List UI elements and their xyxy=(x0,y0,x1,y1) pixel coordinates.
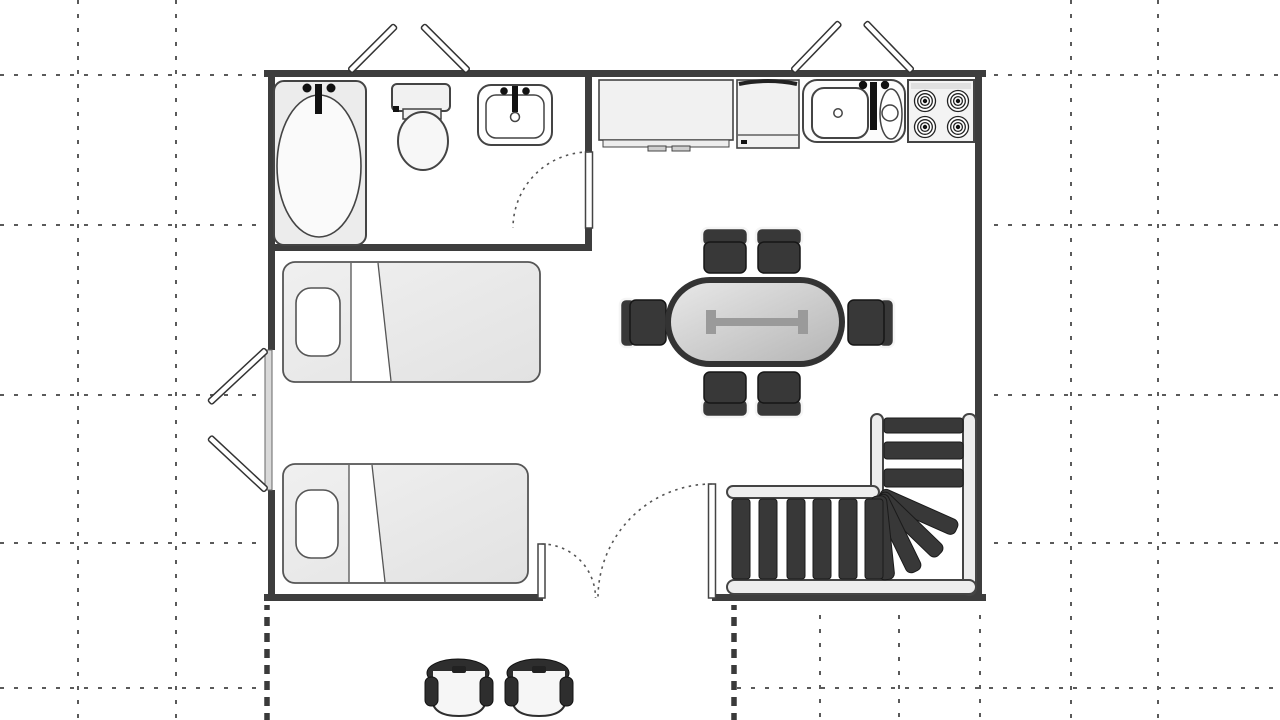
bed-2 xyxy=(283,464,528,583)
bed-1 xyxy=(283,262,540,382)
sink-tap-handle xyxy=(881,81,889,89)
patio-chair xyxy=(425,659,493,716)
stair-tread xyxy=(884,469,963,487)
bathtub-fixture xyxy=(274,81,366,245)
patio-chair xyxy=(505,659,573,716)
pillow xyxy=(296,490,338,558)
stair-tread xyxy=(732,499,750,579)
stair-stringer xyxy=(963,414,976,595)
top-left-door-leaf xyxy=(348,24,397,73)
property-boundary-dashed xyxy=(267,601,734,720)
entrance-door-leaf-small xyxy=(538,544,545,598)
sink-side-drain xyxy=(882,105,898,121)
stair-tread xyxy=(813,499,831,579)
stair-tread xyxy=(884,418,963,433)
chair-seat xyxy=(758,372,800,403)
dining-chair xyxy=(702,228,748,273)
stove-burner-icon xyxy=(948,91,969,112)
dining-chair xyxy=(756,228,802,273)
washbasin-tap-handle xyxy=(522,87,530,95)
stove-burner-icon xyxy=(948,117,969,138)
kitchen-counter xyxy=(599,80,733,151)
stair-tread xyxy=(865,499,883,579)
stair-tread xyxy=(759,499,777,579)
table-ibeam-bar xyxy=(714,318,800,326)
patio-chair-seat xyxy=(432,670,486,716)
stair-stringer xyxy=(727,486,879,498)
sink-tap-handle xyxy=(859,81,867,89)
chair-seat xyxy=(758,242,800,273)
dining-chair xyxy=(848,299,894,347)
chair-seat xyxy=(630,300,666,345)
top-left-door-leaf xyxy=(421,24,470,73)
chair-seat xyxy=(848,300,884,345)
stove-back-panel xyxy=(911,83,971,89)
patio-chair-armrest xyxy=(480,677,493,706)
stove-burner-icon xyxy=(915,91,936,112)
cabinet-body xyxy=(737,80,799,148)
floor-plan-drawing xyxy=(0,0,1280,720)
bathtub-basin xyxy=(277,95,361,237)
counter-handle xyxy=(648,146,666,151)
stair-tread xyxy=(787,499,805,579)
pillow xyxy=(296,288,340,356)
stove-burner-icon xyxy=(915,117,936,138)
patio-chair-headrest xyxy=(452,666,466,673)
kitchen xyxy=(599,80,974,151)
washbasin-drain xyxy=(511,113,520,122)
dining-chair xyxy=(702,372,748,417)
toilet-flush-button xyxy=(393,106,399,112)
washbasin-fixture xyxy=(478,85,552,145)
chair-seat xyxy=(704,372,746,403)
sink-drain xyxy=(834,109,842,117)
left-door-leaf xyxy=(208,348,268,405)
washbasin-tap-handle xyxy=(500,87,508,95)
left-door-threshold xyxy=(265,350,272,490)
top-right-door-leaf xyxy=(863,21,914,73)
cabinet-latch xyxy=(741,140,747,144)
table-ibeam-cap xyxy=(798,310,808,334)
dining-chair xyxy=(756,372,802,417)
bathtub-faucet-icon xyxy=(315,84,322,114)
toilet-tank xyxy=(392,84,450,111)
counter-top xyxy=(599,80,733,140)
stair-stringer xyxy=(871,414,883,496)
stair-stringer xyxy=(727,580,976,594)
sink-faucet-icon xyxy=(870,82,877,130)
bathroom-door-leaf xyxy=(586,152,593,228)
top-right-door-leaf xyxy=(791,21,842,73)
patio-chair-armrest xyxy=(425,677,438,706)
stair-tread xyxy=(839,499,857,579)
entrance-door-leaf-large xyxy=(709,484,716,598)
table-ibeam-cap xyxy=(706,310,716,334)
kitchen-cabinet-unit xyxy=(737,80,799,148)
stair-tread xyxy=(884,442,963,459)
counter-handle xyxy=(672,146,690,151)
stove-fixture xyxy=(908,80,974,142)
kitchen-sink-fixture xyxy=(803,80,905,142)
bathtub-tap-handle xyxy=(303,84,312,93)
floor-plan-canvas xyxy=(0,0,1280,720)
chair-seat xyxy=(704,242,746,273)
dining-chair xyxy=(620,299,666,347)
left-door-leaf xyxy=(208,435,268,492)
bathtub-tap-handle xyxy=(327,84,336,93)
washbasin-faucet-icon xyxy=(512,86,518,112)
toilet-bowl xyxy=(398,112,448,170)
